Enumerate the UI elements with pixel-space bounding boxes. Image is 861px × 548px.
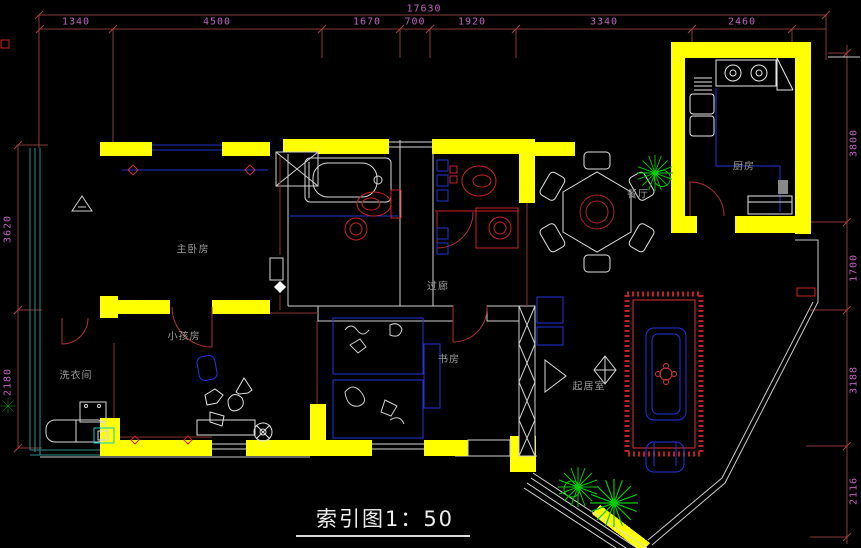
- room-label-master-bedroom: 主卧房: [177, 241, 210, 256]
- cad-drawing: [0, 0, 861, 548]
- tv-symbol: [545, 360, 566, 392]
- dim-top-total: 17630: [406, 4, 441, 15]
- side-tables: [537, 297, 563, 345]
- drawing-title: 索引图1：50: [316, 503, 454, 533]
- study-door: [453, 306, 487, 342]
- room-label-study: 书房: [438, 351, 460, 366]
- kitchen-sink: [690, 78, 714, 136]
- warning-triangle-symbol: [72, 196, 92, 211]
- title-underline: [296, 535, 470, 537]
- corner-shelf: [777, 58, 793, 90]
- toilet-1: [357, 190, 401, 218]
- shower-column: [437, 160, 448, 254]
- squat-toilet: [450, 166, 496, 196]
- dim-top-2: 4500: [203, 17, 231, 28]
- cad-viewport: 17630 1340 4500 1670 700 1920 3340 2460 …: [0, 0, 861, 548]
- living-rug: [627, 294, 701, 454]
- door-arcs: [62, 182, 724, 347]
- room-label-kids-room: 小孩房: [168, 328, 201, 343]
- plant-balcony: [0, 398, 16, 414]
- master-door-marker: [274, 281, 286, 293]
- dim-top-6: 3340: [590, 17, 618, 28]
- laundry-door: [62, 318, 88, 344]
- dim-left-1: 3620: [3, 215, 14, 243]
- dim-top-4: 700: [404, 17, 425, 28]
- dim-top-5: 1920: [458, 17, 486, 28]
- dim-right-1: 3800: [849, 129, 860, 157]
- study-furniture: [333, 318, 440, 438]
- coffee-table: [646, 328, 686, 420]
- dim-right-3: 3188: [849, 366, 860, 394]
- corner-marker: [1, 40, 9, 48]
- walls-yellow: [100, 42, 811, 548]
- room-label-living-room: 起居室: [573, 378, 606, 393]
- dim-right-4: 2116: [849, 477, 860, 505]
- dining-table: [539, 152, 656, 272]
- inner-partitions-red: [114, 156, 527, 437]
- dim-left-2: 2180: [3, 368, 14, 396]
- fridge: [748, 180, 792, 214]
- dim-top-3: 1670: [353, 17, 381, 28]
- kitchen-counter: [716, 88, 780, 212]
- room-label-hallway: 过廊: [427, 278, 449, 293]
- nightstand: [270, 258, 283, 280]
- room-label-dining: 餐厅: [627, 186, 649, 201]
- kids-room-furniture: [196, 355, 272, 441]
- kitchen-door: [690, 182, 724, 216]
- dim-right-2: 1700: [849, 254, 860, 282]
- wall-accent-red: [797, 288, 815, 296]
- dining-table-center: [580, 195, 614, 229]
- dim-top-1: 1340: [62, 17, 90, 28]
- dim-top-7: 2460: [728, 17, 756, 28]
- plant-bay-2: [590, 479, 638, 527]
- armchair: [646, 442, 684, 472]
- plants: [0, 155, 673, 527]
- room-label-laundry: 洗衣间: [60, 367, 93, 382]
- rug-flower: [656, 364, 677, 385]
- plant-bay-1: [558, 467, 598, 507]
- dining-chairs: [539, 152, 656, 272]
- stove: [716, 60, 776, 86]
- basin-1: [345, 218, 367, 240]
- room-label-kitchen: 厨房: [733, 158, 755, 173]
